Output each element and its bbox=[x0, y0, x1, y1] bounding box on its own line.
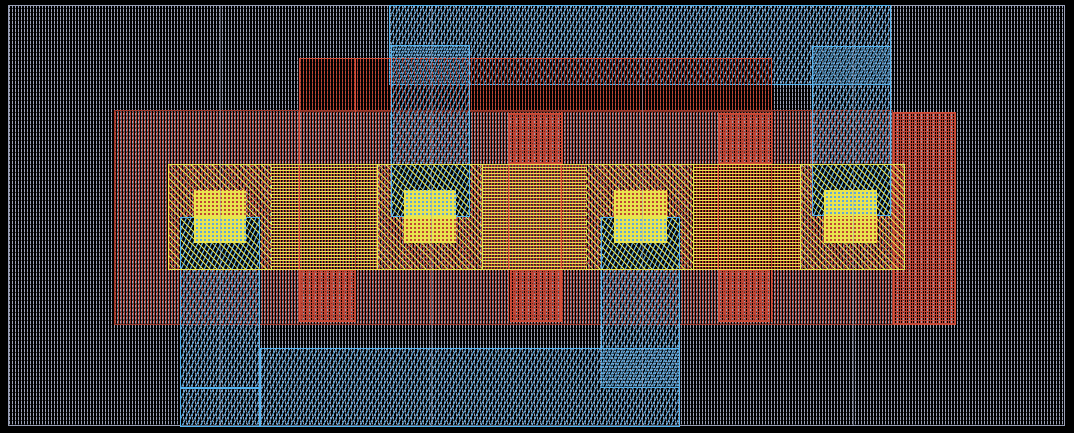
active-divider-5 bbox=[693, 164, 694, 270]
active-divider-3 bbox=[482, 164, 483, 270]
active-divider-2 bbox=[377, 164, 378, 270]
poly-rect-upper bbox=[299, 58, 772, 112]
cell-boundary-seam-3 bbox=[642, 5, 643, 426]
active-divider-1 bbox=[271, 164, 272, 270]
active-divider-6 bbox=[800, 164, 801, 270]
metal-rect-bottom bbox=[260, 348, 680, 427]
cell-boundary-seam-1 bbox=[220, 5, 221, 426]
active-band-outline bbox=[168, 164, 905, 270]
layout-viewer-window bbox=[0, 0, 1074, 433]
active-divider-4 bbox=[586, 164, 587, 270]
cell-boundary-seam-2 bbox=[431, 5, 432, 426]
cell-boundary-seam-4 bbox=[853, 5, 854, 426]
layout-canvas[interactable] bbox=[0, 0, 1074, 433]
